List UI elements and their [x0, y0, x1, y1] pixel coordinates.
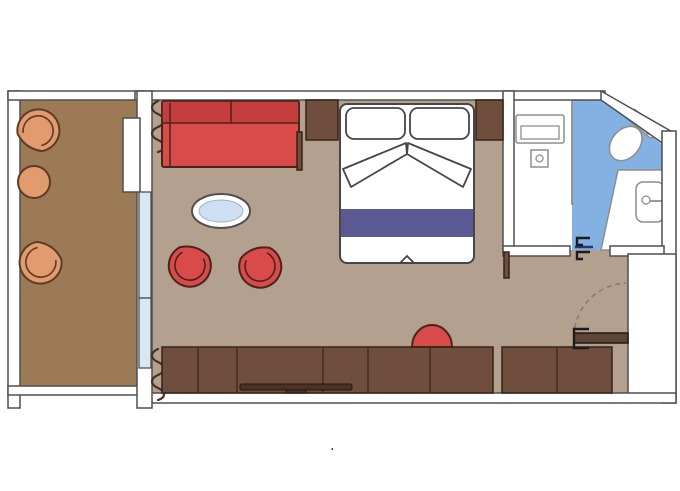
double-bed — [340, 104, 474, 263]
shower-control — [531, 150, 548, 167]
nightstand-right — [476, 100, 503, 140]
balcony-table — [18, 166, 50, 198]
pillow-right — [410, 108, 469, 139]
pillow-left — [346, 108, 405, 139]
wall-balcony-bottom — [8, 386, 143, 395]
nightstand-left — [306, 100, 338, 140]
sliding-door-glass-upper — [139, 192, 151, 298]
sliding-door-panel — [123, 118, 140, 192]
side-shelf — [297, 132, 302, 170]
floor-plan-canvas — [0, 0, 680, 491]
sofa — [162, 101, 299, 167]
wall-top — [135, 91, 605, 100]
wall-bottom — [143, 393, 676, 403]
wall-balcony-top — [8, 91, 143, 100]
wall-bathroom-left — [503, 91, 514, 252]
tv — [240, 384, 352, 390]
wall-left — [8, 91, 20, 408]
bed-runner — [341, 209, 473, 237]
caption-mark: . — [330, 438, 334, 454]
wall-bathroom-bottom-left — [503, 246, 570, 256]
wardrobe-row — [162, 347, 612, 393]
sink — [636, 182, 664, 222]
tv-mount — [286, 390, 306, 393]
sliding-door-glass-lower — [139, 298, 151, 368]
floor-plan: . — [0, 0, 680, 491]
entry-door — [574, 333, 628, 343]
shower-bench — [516, 115, 564, 143]
wall-corridor-right — [628, 254, 676, 399]
bathroom-door-panel — [504, 252, 509, 278]
coffee-table — [192, 194, 250, 228]
